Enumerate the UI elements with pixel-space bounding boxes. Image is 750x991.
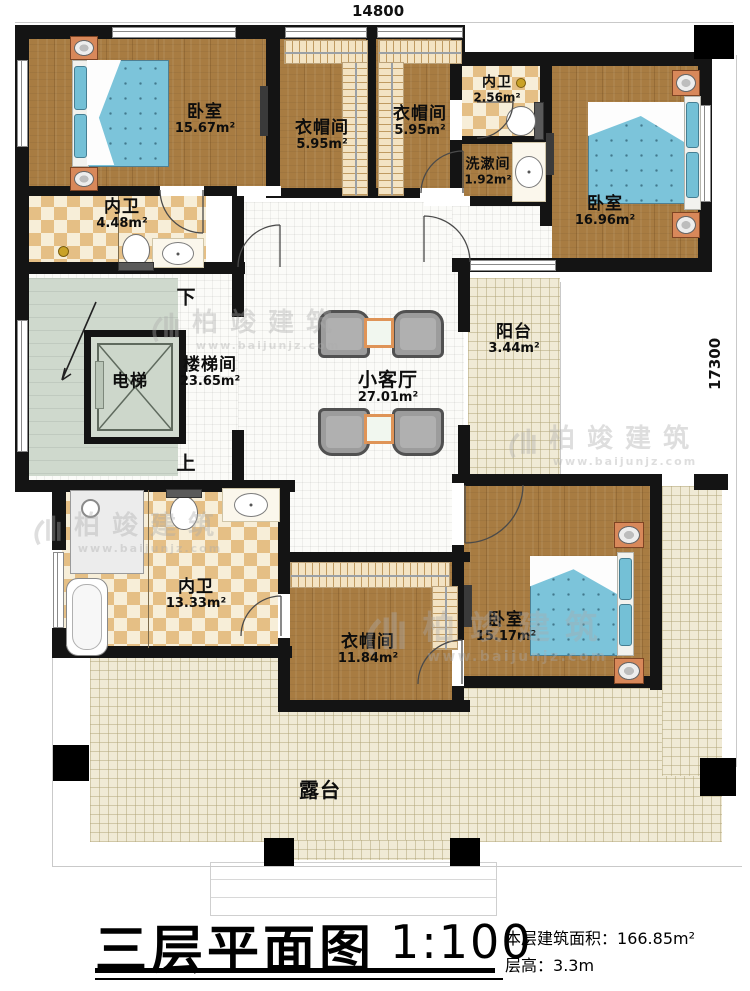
bathtub	[66, 578, 108, 656]
room-label-bath-tl: 内卫 4.48m²	[96, 198, 147, 232]
armchair	[318, 310, 370, 358]
room-label-bedroom-tl: 卧室 15.67m²	[175, 103, 235, 137]
closet-hatch	[284, 40, 368, 64]
nightstand	[672, 212, 700, 238]
room-label-cloak-2: 衣帽间 5.95m²	[393, 105, 447, 139]
bed-pillow	[74, 114, 87, 158]
sink	[515, 156, 543, 188]
room-label-balcony: 阳台 3.44m²	[488, 323, 539, 357]
toilet	[170, 496, 198, 530]
armchair	[318, 408, 370, 456]
title-underline-thick	[95, 968, 495, 973]
elevator-rail	[95, 361, 104, 409]
side-table	[364, 318, 394, 348]
dimension-top: 14800	[352, 2, 404, 20]
pillar	[53, 745, 89, 781]
armchair	[392, 310, 444, 358]
toilet-tank	[166, 489, 202, 498]
room-label-stairwell: 楼梯间 23.65m²	[180, 356, 240, 390]
room-label-terrace: 露台	[299, 779, 341, 801]
wall	[451, 52, 712, 66]
eave-line-right	[736, 55, 737, 767]
room-label-bath-top: 内卫 2.56m²	[473, 75, 520, 104]
room-label-bedroom-br: 卧室 15.17m²	[476, 611, 536, 645]
terrace-right-strip	[662, 486, 722, 776]
door-gap	[424, 196, 470, 206]
bed-pillow	[619, 604, 632, 646]
stairs-down-label: 下	[176, 283, 195, 310]
window	[285, 27, 367, 38]
door-gap	[237, 186, 281, 196]
floor-drain	[58, 246, 69, 257]
floor-area-label: 本层建筑面积：	[505, 929, 617, 948]
bed-pillow	[686, 152, 699, 198]
floor-plan-canvas: 14800 17300	[0, 0, 750, 991]
floor-height-value: 3.3m	[553, 956, 594, 975]
floor-height-label: 层高：	[505, 956, 553, 975]
room-label-bath-bl: 内卫 13.33m²	[166, 578, 226, 612]
title-underline-thin	[95, 978, 503, 980]
sink	[162, 242, 194, 265]
nightstand	[672, 70, 700, 96]
wall	[278, 552, 470, 562]
room-hall	[452, 206, 552, 262]
door-gap	[452, 483, 464, 545]
window	[17, 320, 28, 452]
armchair	[392, 408, 444, 456]
door-gap	[450, 100, 462, 140]
wall	[266, 25, 280, 195]
bath-partition	[148, 490, 149, 648]
terrace-step-landing	[280, 840, 460, 860]
side-table	[364, 414, 394, 444]
closet-hatch	[432, 586, 458, 650]
nightstand	[614, 658, 644, 684]
shower	[70, 490, 144, 574]
dimension-line-top	[15, 22, 733, 23]
floor-area-value: 166.85m²	[617, 929, 695, 948]
window	[17, 60, 28, 147]
nightstand	[70, 167, 98, 191]
tv	[546, 133, 554, 175]
balcony-rail	[560, 282, 561, 478]
tv	[260, 86, 268, 136]
wall	[650, 474, 662, 690]
closet-hatch	[378, 40, 462, 64]
eave-line-bottom	[52, 866, 742, 867]
balcony-slider-window	[470, 260, 556, 271]
room-label-elevator: 电梯	[112, 372, 148, 391]
toilet-tank	[118, 262, 154, 271]
door-gap	[278, 594, 290, 638]
room-balcony	[468, 278, 560, 478]
nightstand	[614, 522, 644, 548]
wall	[452, 474, 662, 486]
nightstand	[70, 36, 98, 60]
wall	[52, 480, 66, 550]
closet-hatch	[290, 562, 450, 588]
room-label-wash: 洗漱间 1.92m²	[464, 157, 511, 186]
stairs-up-label: 上	[176, 449, 195, 476]
room-label-bedroom-tr: 卧室 16.96m²	[575, 195, 635, 229]
wall	[458, 425, 470, 482]
window	[377, 27, 463, 38]
toilet	[506, 106, 536, 136]
pillar	[450, 838, 480, 866]
bed-pillow	[74, 66, 87, 110]
sink	[234, 493, 268, 517]
pillar	[264, 838, 294, 866]
wall	[694, 474, 728, 490]
window	[700, 105, 711, 202]
door-gap	[160, 186, 204, 196]
room-label-living: 小客厅 27.01m²	[358, 370, 418, 406]
floor-area-info: 本层建筑面积：166.85m²	[505, 925, 695, 949]
floor-height-info: 层高：3.3m	[505, 952, 594, 976]
wall	[278, 700, 470, 712]
pillar	[700, 758, 736, 796]
pillar	[694, 25, 734, 59]
wall	[458, 272, 470, 332]
room-label-cloak-1: 衣帽间 5.95m²	[295, 119, 349, 153]
wall	[232, 262, 244, 317]
tv	[464, 585, 472, 627]
dimension-right: 17300	[706, 338, 724, 390]
window	[53, 552, 64, 628]
bed-pillow	[619, 558, 632, 600]
window	[112, 27, 236, 38]
bed-pillow	[686, 102, 699, 148]
room-label-cloak-3: 衣帽间 11.84m²	[338, 633, 398, 667]
